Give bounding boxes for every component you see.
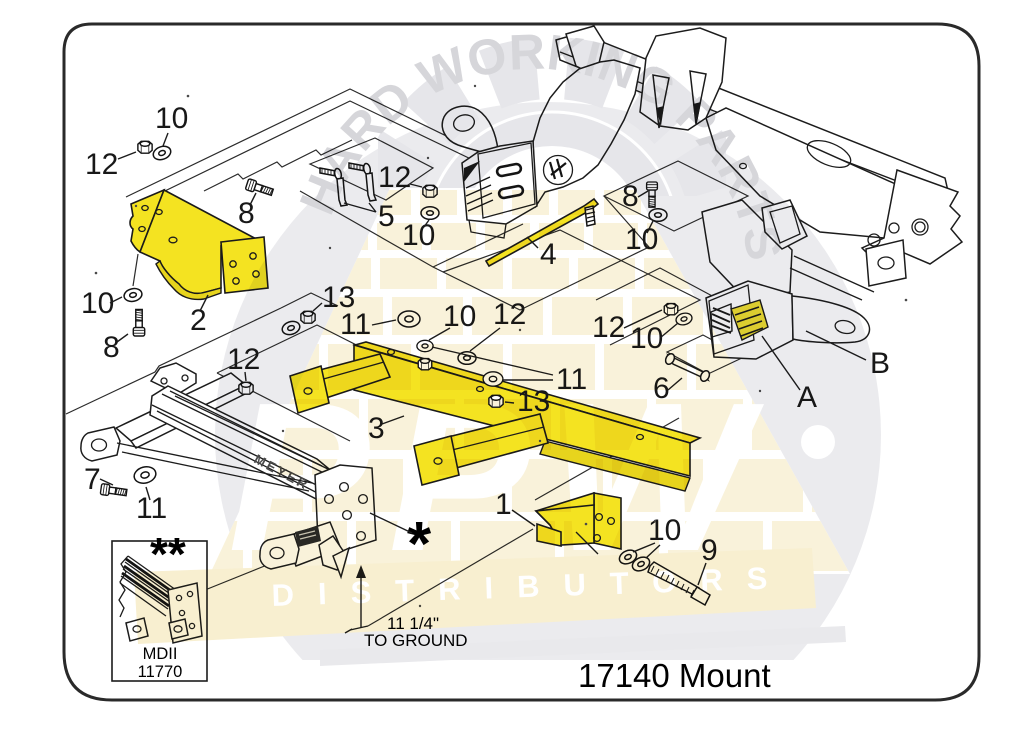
svg-text:10: 10 [81, 287, 114, 320]
svg-text:10: 10 [155, 102, 188, 135]
svg-text:17140 Mount: 17140 Mount [578, 657, 771, 694]
svg-text:11770: 11770 [138, 663, 183, 681]
svg-text:2: 2 [190, 304, 207, 337]
svg-text:8: 8 [103, 331, 120, 364]
svg-text:12: 12 [85, 148, 118, 181]
svg-text:11: 11 [136, 492, 167, 525]
svg-text:7: 7 [84, 463, 101, 496]
svg-text:MDII: MDII [143, 645, 178, 663]
